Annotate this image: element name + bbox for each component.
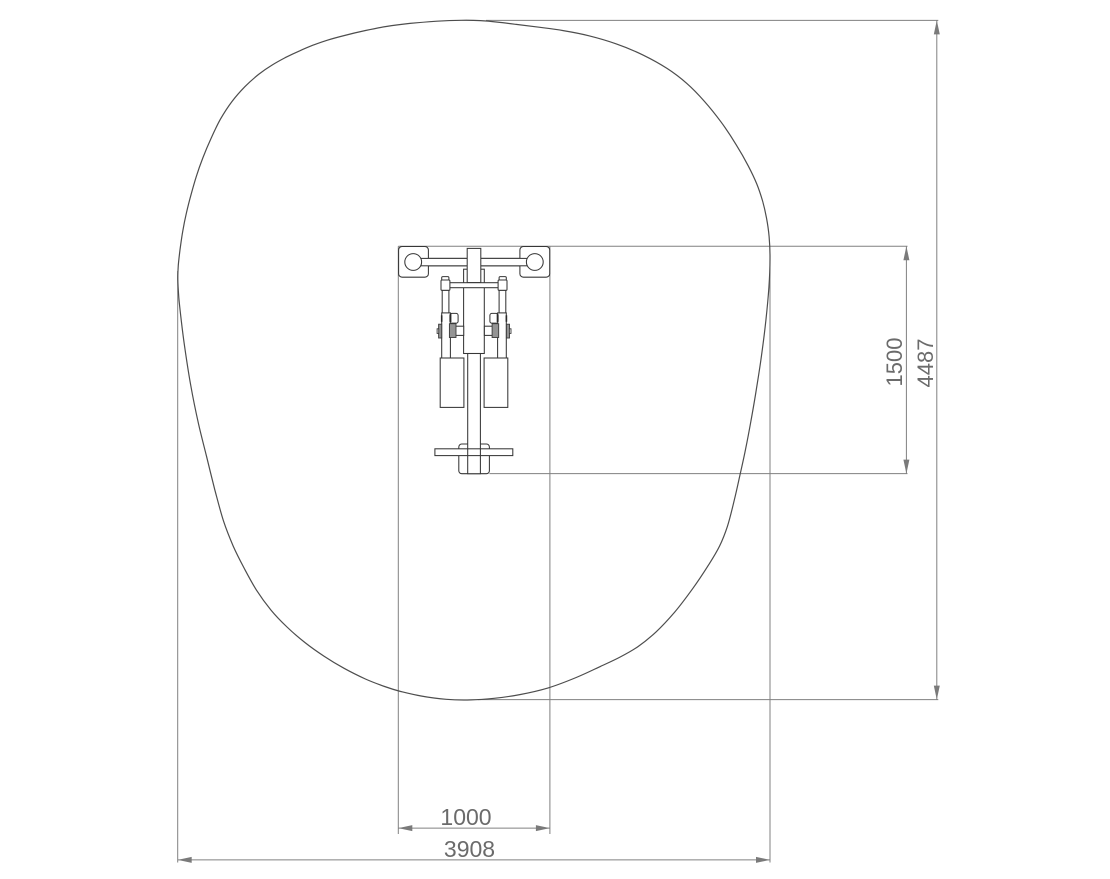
svg-text:1500: 1500	[882, 338, 907, 387]
svg-text:4487: 4487	[913, 339, 938, 388]
svg-text:1000: 1000	[440, 804, 491, 830]
svg-text:3908: 3908	[444, 836, 495, 862]
